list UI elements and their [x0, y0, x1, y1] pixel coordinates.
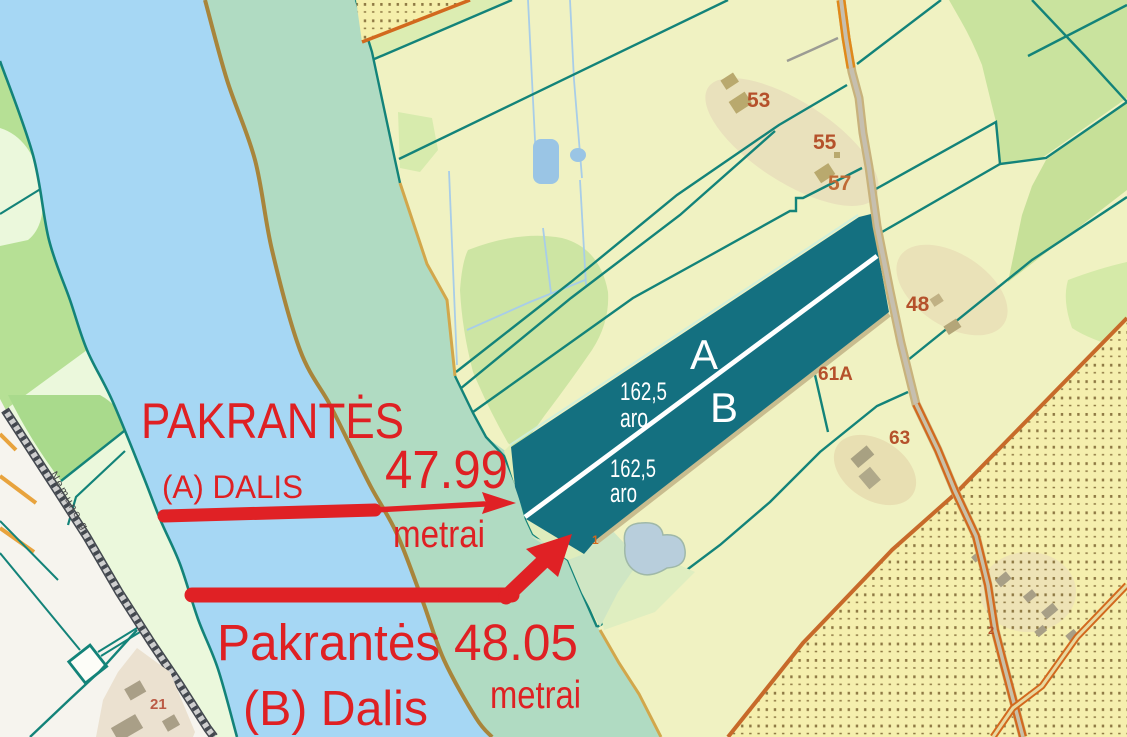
svg-text:63: 63 — [889, 428, 910, 449]
svg-text:53: 53 — [747, 89, 770, 112]
svg-text:Pakrantės 48.05: Pakrantės 48.05 — [217, 614, 578, 671]
svg-text:B: B — [710, 384, 738, 431]
svg-text:61A: 61A — [818, 364, 853, 385]
svg-text:metrai: metrai — [393, 514, 485, 556]
svg-text:aro: aro — [610, 478, 637, 508]
svg-text:2: 2 — [988, 625, 994, 637]
svg-text:48: 48 — [906, 293, 930, 316]
svg-text:55: 55 — [813, 131, 837, 154]
svg-text:47.99: 47.99 — [385, 440, 508, 500]
svg-text:(B) Dalis: (B) Dalis — [243, 682, 428, 736]
svg-text:metrai: metrai — [490, 674, 581, 717]
svg-text:1: 1 — [592, 533, 599, 547]
svg-text:162,5: 162,5 — [620, 378, 667, 406]
svg-text:aro: aro — [620, 403, 648, 433]
svg-text:57: 57 — [828, 172, 851, 195]
svg-text:(A) DALIS: (A) DALIS — [162, 469, 303, 505]
svg-text:21: 21 — [150, 696, 167, 713]
svg-text:PAKRANTĖS: PAKRANTĖS — [141, 393, 404, 449]
svg-text:A: A — [690, 331, 718, 378]
